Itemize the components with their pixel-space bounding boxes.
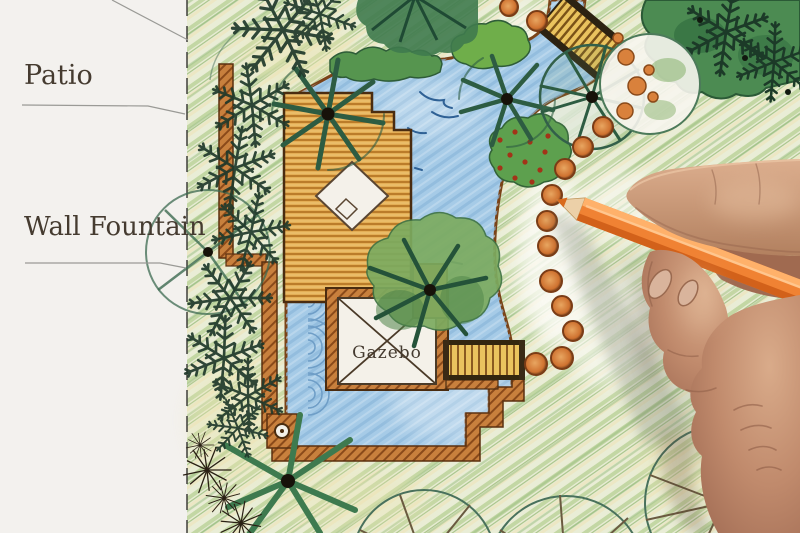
plan-drawing: Gazebo <box>0 0 800 533</box>
stepping-stone <box>500 0 518 16</box>
gazebo-label: Gazebo <box>352 343 422 363</box>
wall-fountain-label: Wall Fountain <box>24 212 206 242</box>
stepping-stone <box>563 321 583 341</box>
photo-of-landscape-plan: Gazebo <box>0 0 800 533</box>
fruit-tree <box>600 33 700 134</box>
stepping-stone <box>525 353 547 375</box>
stepping-stone <box>527 11 547 31</box>
stepping-stone <box>540 270 562 292</box>
stepping-stone <box>538 236 558 256</box>
stepping-stone <box>573 137 593 157</box>
stepping-stone <box>552 296 572 316</box>
stepping-stone <box>551 347 573 369</box>
stepping-stone <box>593 117 613 137</box>
stepping-stone <box>555 159 575 179</box>
patio-label: Patio <box>24 60 93 91</box>
